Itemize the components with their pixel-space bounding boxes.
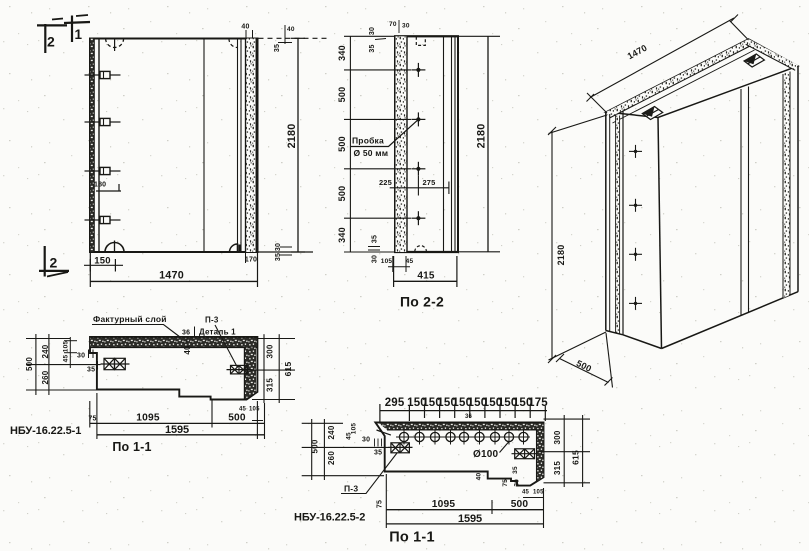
- svg-text:615: 615: [283, 362, 293, 377]
- svg-text:30: 30: [402, 23, 410, 30]
- svg-text:35: 35: [372, 235, 379, 243]
- svg-text:П-3: П-3: [205, 316, 219, 325]
- svg-text:1095: 1095: [432, 499, 456, 510]
- svg-text:По 2-2: По 2-2: [400, 294, 444, 310]
- svg-text:2180: 2180: [286, 124, 298, 149]
- svg-text:35: 35: [274, 44, 281, 52]
- svg-text:150: 150: [94, 256, 110, 267]
- svg-text:40: 40: [241, 24, 249, 31]
- svg-text:45: 45: [63, 355, 70, 363]
- svg-text:35: 35: [87, 367, 95, 374]
- svg-text:2: 2: [47, 34, 55, 50]
- svg-text:105: 105: [249, 407, 260, 413]
- svg-text:240: 240: [327, 425, 336, 439]
- svg-text:30: 30: [514, 479, 521, 487]
- svg-text:295: 295: [385, 397, 405, 409]
- svg-text:340: 340: [337, 45, 347, 61]
- svg-text:45: 45: [522, 490, 530, 496]
- svg-text:105: 105: [63, 341, 70, 353]
- svg-text:По 1-1: По 1-1: [389, 530, 434, 546]
- svg-text:315: 315: [553, 461, 562, 475]
- svg-text:300: 300: [553, 430, 562, 444]
- svg-text:275: 275: [422, 178, 435, 187]
- svg-text:По 1-1: По 1-1: [112, 440, 151, 454]
- svg-text:Ø 50 мм: Ø 50 мм: [354, 148, 389, 158]
- svg-text:340: 340: [337, 227, 347, 243]
- svg-text:40: 40: [287, 26, 295, 33]
- svg-text:75: 75: [88, 416, 96, 423]
- svg-text:30: 30: [372, 255, 379, 263]
- svg-text:30: 30: [77, 353, 85, 360]
- svg-text:615: 615: [571, 450, 581, 465]
- svg-text:225: 225: [379, 178, 392, 187]
- svg-text:2180: 2180: [556, 245, 566, 266]
- svg-text:500: 500: [311, 439, 320, 453]
- svg-text:500: 500: [511, 499, 529, 510]
- svg-text:500: 500: [337, 186, 347, 202]
- svg-text:1595: 1595: [165, 424, 189, 436]
- svg-text:35: 35: [374, 450, 382, 457]
- svg-text:500: 500: [337, 136, 347, 152]
- svg-text:35: 35: [512, 466, 519, 474]
- svg-text:170: 170: [245, 257, 257, 264]
- svg-text:40: 40: [183, 345, 192, 355]
- svg-text:1470: 1470: [159, 270, 184, 282]
- svg-text:70: 70: [389, 21, 397, 28]
- svg-text:45: 45: [239, 407, 247, 413]
- svg-text:30: 30: [362, 437, 370, 444]
- svg-text:500: 500: [25, 357, 34, 371]
- svg-text:40: 40: [476, 473, 483, 481]
- svg-text:75: 75: [377, 500, 384, 508]
- svg-text:2: 2: [50, 255, 58, 271]
- svg-text:105: 105: [533, 490, 544, 496]
- svg-text:НБУ-16.22.5-1: НБУ-16.22.5-1: [10, 425, 81, 437]
- svg-text:500: 500: [228, 413, 246, 424]
- svg-text:П-3: П-3: [344, 484, 358, 494]
- svg-text:Пробка: Пробка: [352, 136, 384, 146]
- svg-text:35: 35: [369, 44, 376, 52]
- svg-text:Ø100: Ø100: [473, 449, 499, 460]
- svg-text:240: 240: [41, 344, 50, 358]
- svg-text:1595: 1595: [458, 513, 482, 525]
- svg-text:Фактурный слой: Фактурный слой: [93, 314, 167, 324]
- svg-text:45: 45: [346, 432, 353, 440]
- svg-text:300: 300: [266, 344, 275, 358]
- svg-text:415: 415: [417, 271, 435, 282]
- svg-text:180: 180: [94, 182, 106, 189]
- svg-text:1095: 1095: [136, 413, 160, 424]
- svg-text:45: 45: [406, 258, 414, 265]
- svg-text:500: 500: [337, 87, 347, 103]
- svg-text:260: 260: [327, 451, 336, 465]
- svg-text:30: 30: [369, 27, 376, 35]
- svg-text:1: 1: [75, 27, 83, 42]
- svg-text:175: 175: [528, 397, 548, 409]
- svg-text:2180: 2180: [476, 124, 488, 149]
- svg-text:35: 35: [275, 253, 282, 261]
- svg-text:75: 75: [502, 479, 509, 487]
- svg-text:НБУ-16.22.5-2: НБУ-16.22.5-2: [294, 512, 365, 524]
- svg-text:315: 315: [266, 378, 275, 392]
- svg-text:36: 36: [182, 330, 190, 337]
- svg-text:260: 260: [41, 370, 50, 384]
- svg-text:105: 105: [381, 258, 393, 265]
- svg-text:36: 36: [465, 414, 473, 420]
